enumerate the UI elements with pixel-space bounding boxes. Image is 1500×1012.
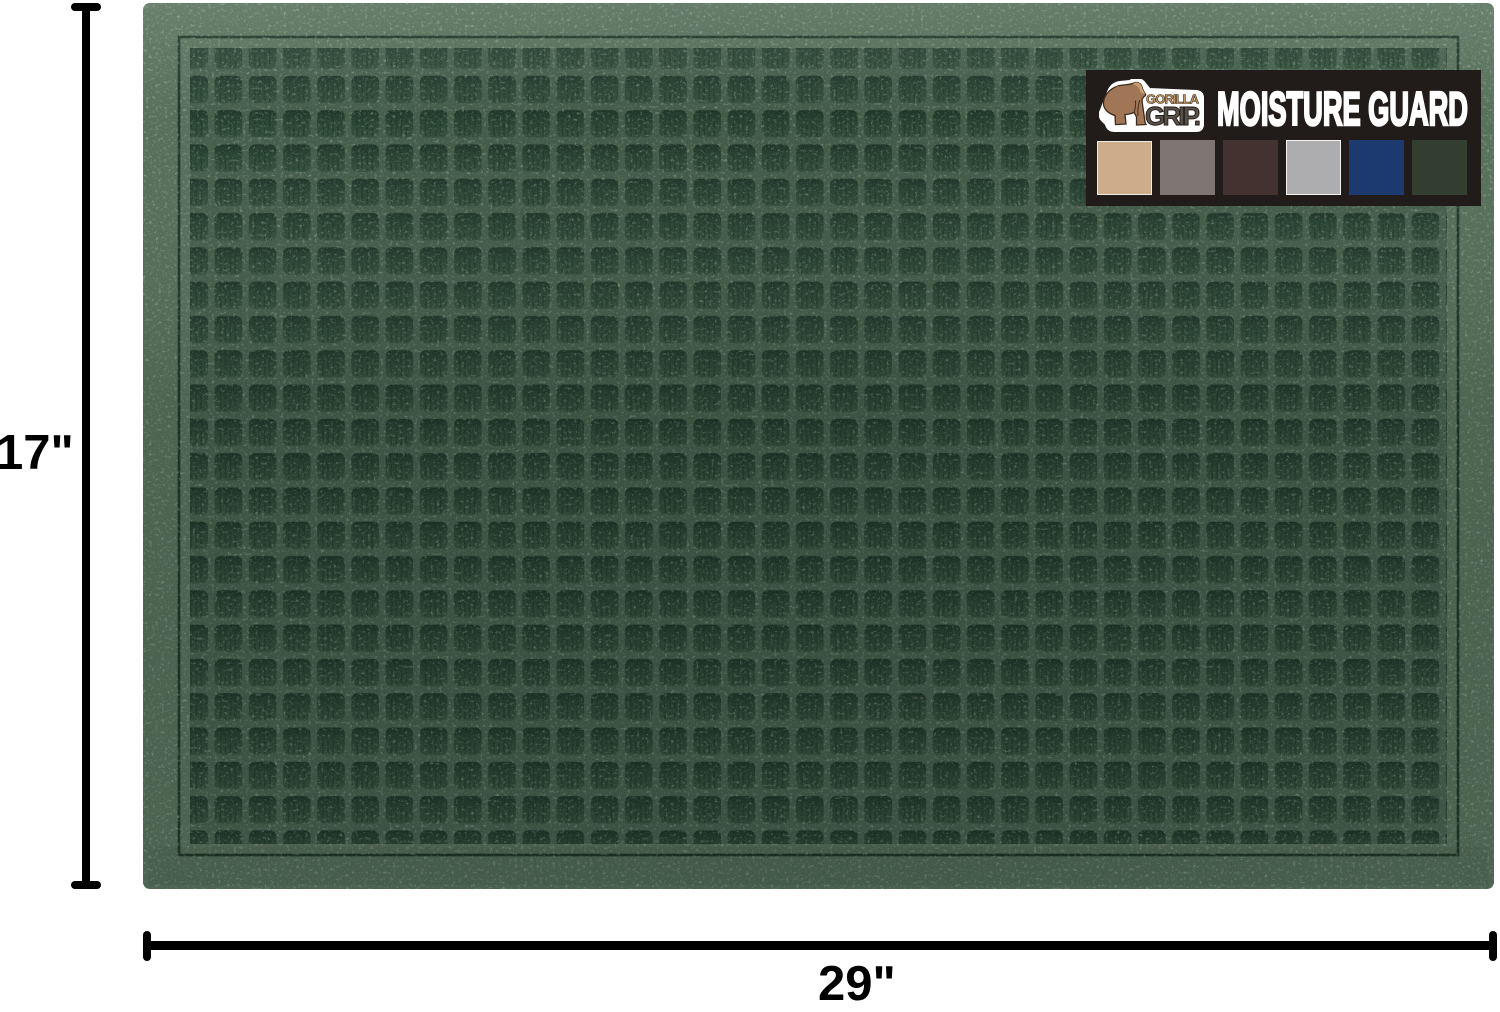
- svg-text:GRIP.: GRIP.: [1145, 101, 1201, 131]
